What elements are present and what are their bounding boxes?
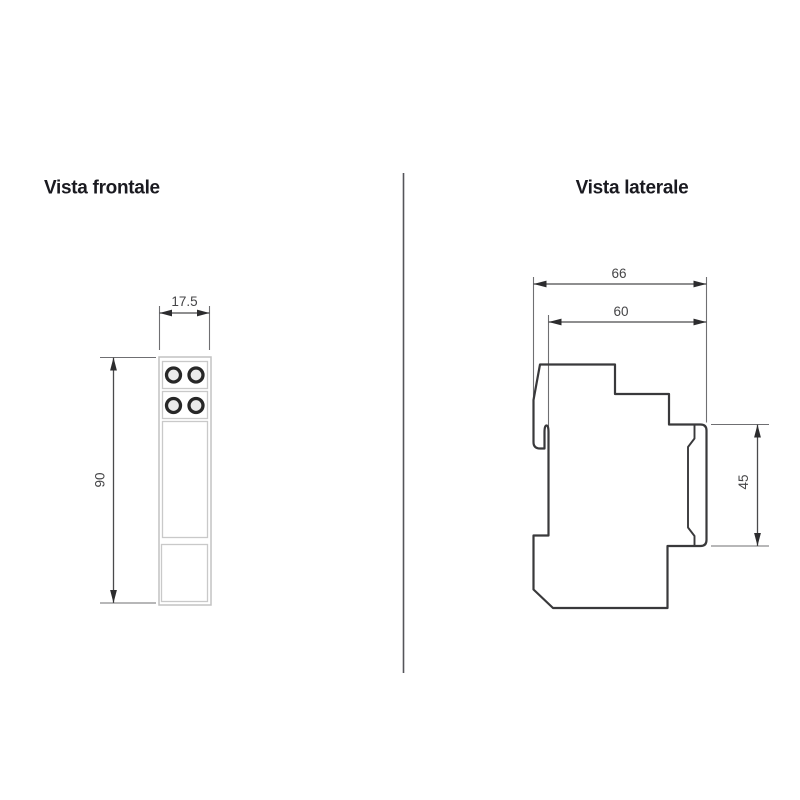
arrowhead-down <box>754 533 761 546</box>
front-view-title: Vista frontale <box>44 178 160 199</box>
side-view-module <box>534 365 707 609</box>
arrowhead-down <box>110 590 117 603</box>
arrowhead-up <box>754 425 761 438</box>
terminal-screw <box>189 368 203 382</box>
side-front-height-dim-label: 45 <box>736 474 751 489</box>
front-panel-edge-line <box>688 426 695 546</box>
front-height-dim-label: 90 <box>93 472 108 487</box>
side-view: Vista laterale 66 60 <box>534 178 770 609</box>
front-width-dimension: 17.5 <box>160 294 210 350</box>
arrowhead-left <box>549 319 562 326</box>
arrowhead-right <box>197 310 210 317</box>
technical-drawing-page: Vista frontale 17.5 90 <box>0 0 800 800</box>
front-height-dimension: 90 <box>93 358 156 604</box>
side-view-title: Vista laterale <box>576 178 689 199</box>
terminal-screw <box>189 399 203 413</box>
drawing-canvas: Vista frontale 17.5 90 <box>0 0 800 800</box>
terminal-screw <box>167 368 181 382</box>
arrowhead-right <box>694 319 707 326</box>
arrowhead-left <box>534 281 547 288</box>
side-total-depth-dimension: 66 <box>534 266 707 423</box>
arrowhead-left <box>160 310 173 317</box>
front-view-module <box>159 357 211 605</box>
front-view: Vista frontale 17.5 90 <box>44 178 211 606</box>
front-width-dim-label: 17.5 <box>171 294 197 309</box>
arrowhead-right <box>694 281 707 288</box>
side-body-depth-dim-label: 60 <box>613 304 628 319</box>
module-side-profile <box>534 365 707 609</box>
side-total-depth-dim-label: 66 <box>611 266 626 281</box>
side-front-height-dimension: 45 <box>711 425 769 547</box>
arrowhead-up <box>110 358 117 371</box>
terminal-screw <box>167 399 181 413</box>
module-bottom-box <box>162 545 208 602</box>
side-body-depth-dimension: 60 <box>549 304 707 430</box>
module-body-box <box>163 422 208 538</box>
